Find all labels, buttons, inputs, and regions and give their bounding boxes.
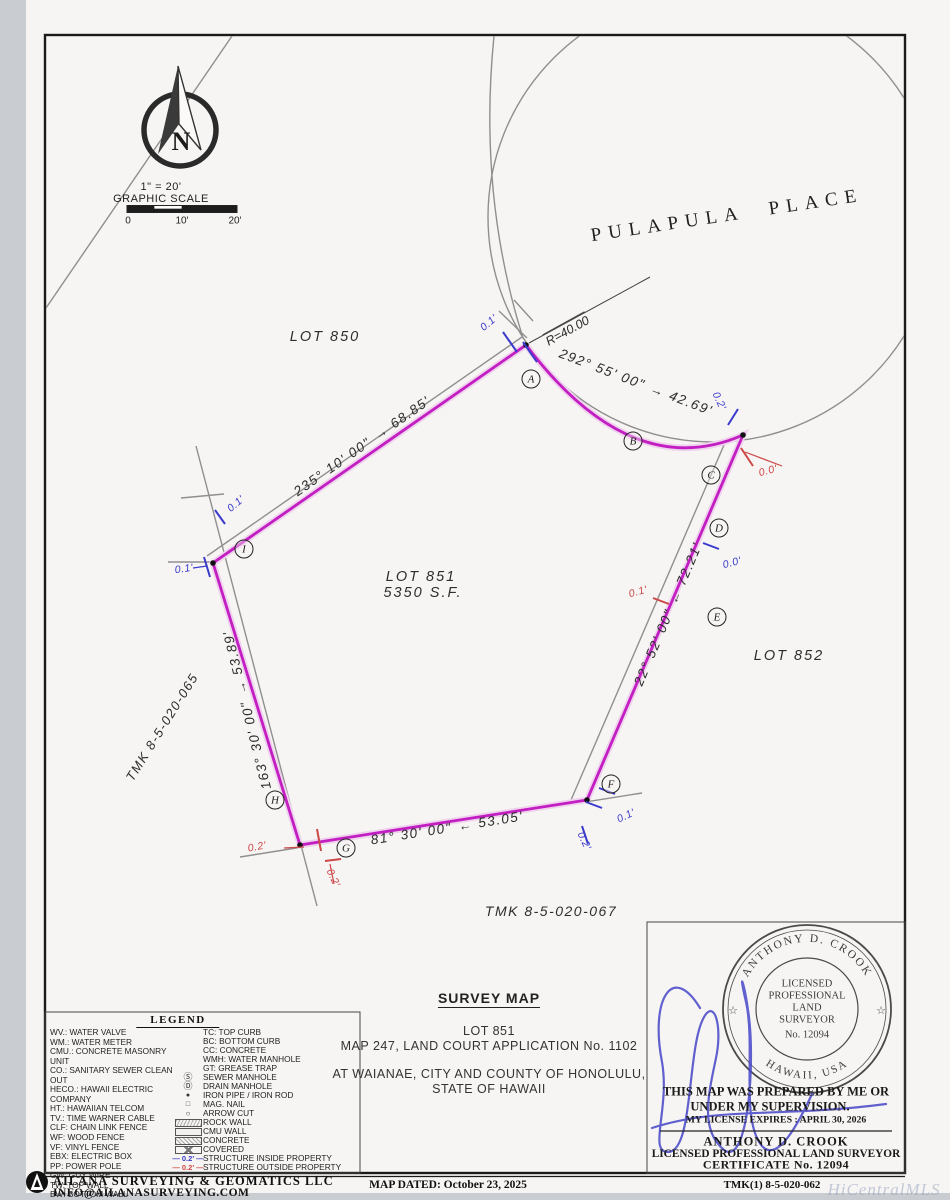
vertex-i: I: [235, 540, 254, 559]
lot851-area-label: 5350 S.F.: [383, 585, 462, 601]
vertex-f: F: [602, 775, 621, 794]
seal-line: LAND: [792, 1003, 821, 1014]
seal-star-left-icon: ☆: [728, 1005, 738, 1017]
corner-monuments: [210, 342, 746, 848]
vertex-g: G: [337, 839, 356, 858]
offset-i-left: 0.1': [174, 562, 194, 576]
direction-arrow: →: [233, 680, 251, 696]
vertex-d: D: [710, 519, 729, 538]
title-state: STATE OF HAWAII: [432, 1082, 546, 1096]
vertex-a: A: [522, 370, 541, 389]
stamp-statement-2: UNDER MY SUPERVISION.: [690, 1100, 849, 1115]
title-location: AT WAIANAE, CITY AND COUNTY OF HONOLULU,: [332, 1067, 645, 1081]
concrete-icon: [175, 1137, 202, 1145]
legend-item: CMU.: CONCRETE MASONRY UNIT: [50, 1047, 178, 1066]
mls-watermark: HiCentralMLS: [827, 1180, 940, 1200]
compass-letter: N: [172, 127, 191, 157]
legend-item: HECO.: HAWAII ELECTRIC COMPANY: [50, 1085, 178, 1104]
cmu-wall-icon: [175, 1128, 202, 1136]
stamp-statement-1: THIS MAP WAS PREPARED BY ME OR: [663, 1085, 889, 1100]
stamp-expires: MY LICENSE EXPIRES : APRIL 30, 2026: [686, 1115, 867, 1126]
direction-arrow: ←: [457, 817, 472, 834]
covered-icon: [175, 1146, 202, 1154]
scale-tick-20: 20': [228, 216, 241, 227]
seal-line: PROFESSIONAL: [768, 991, 845, 1002]
legend-item: CO.: SANITARY SEWER CLEAN OUT: [50, 1066, 178, 1085]
vertex-c: C: [702, 466, 721, 485]
vertex-h: H: [266, 791, 285, 810]
property-boundary: [213, 345, 743, 845]
seal-number: No. 12094: [785, 1030, 829, 1041]
legend-item: STRUCTURE OUTSIDE PROPERTY: [203, 1163, 341, 1173]
title-lot: LOT 851: [463, 1024, 515, 1038]
lot850-label: LOT 850: [290, 329, 360, 345]
scale-tick-10: 10': [175, 216, 188, 227]
seal-line: SURVEYOR: [779, 1015, 835, 1026]
survey-map-page: ANTHONY D. CROOK HAWAII, USA ☆ ☆ PU: [0, 0, 950, 1200]
legend-title: LEGEND: [136, 1014, 219, 1028]
company-logo-icon: [26, 1171, 48, 1193]
lot852-label: LOT 852: [754, 648, 824, 664]
outside-dim-icon: —0.2'—: [173, 1163, 203, 1173]
scale-bar: [127, 206, 237, 213]
legend-right-column: TC: TOP CURB BC: BOTTOM CURB CC: CONCRET…: [173, 1028, 358, 1173]
map-title: SURVEY MAP: [438, 990, 540, 1008]
lot851-label: LOT 851: [386, 569, 456, 585]
scale-ratio: 1" = 20': [141, 181, 182, 193]
certificate-number: CERTIFICATE No. 12094: [703, 1158, 849, 1173]
seal-line: LICENSED: [782, 979, 833, 990]
footer-tmk: TMK(1) 8-5-020-062: [724, 1179, 821, 1191]
seal-star-right-icon: ☆: [876, 1005, 886, 1017]
scale-tick-0: 0: [125, 216, 131, 227]
tmk-south-label: TMK 8-5-020-067: [485, 903, 617, 919]
vertex-e: E: [708, 608, 727, 627]
scale-title: GRAPHIC SCALE: [113, 193, 209, 205]
company-email: INFO@AILANASURVEYING.COM: [53, 1187, 249, 1199]
vertex-b: B: [624, 432, 643, 451]
seal-region-arc: HAWAII, USA: [764, 1057, 851, 1081]
title-application: MAP 247, LAND COURT APPLICATION No. 1102: [341, 1039, 638, 1053]
map-dated: MAP DATED: October 23, 2025: [369, 1179, 527, 1191]
rock-wall-icon: [175, 1119, 202, 1127]
arrow-cut-icon: ○: [173, 1109, 203, 1119]
